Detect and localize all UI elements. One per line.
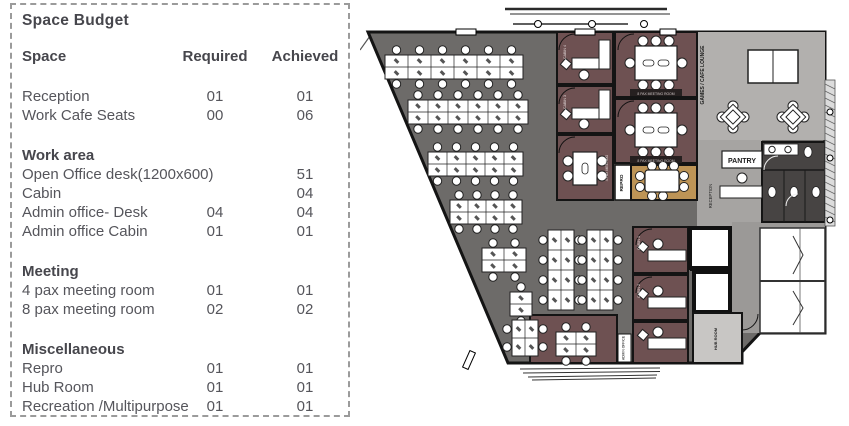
toilet-block	[762, 142, 825, 222]
chair-icon	[578, 256, 586, 264]
staircase	[760, 228, 825, 333]
page: { "space_budget": { "title": "Space Budg…	[0, 0, 849, 426]
row-label: Recreation /Multipurpose	[22, 397, 189, 416]
chair-icon	[539, 296, 547, 304]
section-heading: Work area	[12, 146, 348, 165]
row-achieved: 04	[260, 184, 350, 203]
chair-icon	[578, 296, 586, 304]
row-achieved: 06	[260, 106, 350, 125]
row-achieved: 01	[260, 359, 350, 378]
row-label: Cabin	[22, 184, 61, 203]
chair-icon	[392, 80, 400, 88]
col-achieved: Achieved	[260, 47, 350, 66]
chair-icon	[452, 177, 460, 185]
panel-title: Space Budget	[22, 12, 348, 30]
chair-icon	[415, 80, 423, 88]
row-achieved: 01	[260, 87, 350, 106]
reception-label: RECEPTION	[708, 184, 713, 208]
chair-icon	[452, 143, 460, 151]
cabin-1-label: CABIN 1	[637, 236, 641, 250]
elevator-shafts	[690, 228, 730, 312]
chair-icon	[514, 91, 522, 99]
chair-icon	[514, 125, 522, 133]
row-required: 01	[170, 281, 260, 300]
meeting-8pax-1-label: 8 PAX MEETING ROOM	[637, 159, 674, 163]
chair-icon	[582, 323, 590, 331]
chair-icon	[455, 225, 463, 233]
lounge-floor	[697, 32, 825, 140]
cabin-2-label: CABIN 2	[637, 284, 641, 298]
chair-icon	[562, 357, 570, 365]
repro-label: REPRO	[619, 174, 625, 191]
chair-icon	[438, 46, 446, 54]
col-space: Space	[22, 47, 66, 66]
table-header: Space Required Achieved	[12, 47, 348, 66]
row-achieved: 02	[260, 300, 350, 319]
chair-icon	[473, 225, 481, 233]
row-achieved: 01	[260, 281, 350, 300]
row-required: 01	[170, 222, 260, 241]
chair-icon	[614, 276, 622, 284]
row-label: Hub Room	[22, 378, 94, 397]
chair-icon	[433, 177, 441, 185]
chair-icon	[490, 177, 498, 185]
chair-icon	[438, 80, 446, 88]
chair-icon	[484, 46, 492, 54]
row-achieved: 01	[260, 397, 350, 416]
section-label: Miscellaneous	[22, 340, 125, 359]
table-row: 8 pax meeting room 02 02	[12, 300, 348, 319]
table-row: 4 pax meeting room 01 01	[12, 281, 348, 300]
chair-icon	[578, 276, 586, 284]
row-required: 02	[170, 300, 260, 319]
chair-icon	[509, 143, 517, 151]
row-label: Work Cafe Seats	[22, 106, 135, 125]
row-required: 01	[170, 359, 260, 378]
chair-icon	[507, 46, 515, 54]
chair-icon	[474, 91, 482, 99]
row-label: 4 pax meeting room	[22, 281, 155, 300]
section-heading: Meeting	[12, 262, 348, 281]
chair-icon	[503, 325, 511, 333]
row-achieved: 04	[260, 203, 350, 222]
chair-icon	[434, 125, 442, 133]
row-label: Open Office desk(1200x600)	[22, 165, 214, 184]
chair-icon	[433, 143, 441, 151]
chair-icon	[614, 236, 622, 244]
chair-icon	[414, 125, 422, 133]
chair-icon	[484, 80, 492, 88]
chair-icon	[614, 256, 622, 264]
meeting-8pax-2-label: 8 PAX MEETING ROOM	[637, 92, 674, 96]
row-label: Admin office Cabin	[22, 222, 148, 241]
chair-icon	[494, 125, 502, 133]
chair-icon	[578, 236, 586, 244]
row-achieved: 01	[260, 378, 350, 397]
chair-icon	[511, 273, 519, 281]
chair-icon	[503, 343, 511, 351]
chair-icon	[414, 91, 422, 99]
facade-hatch-band	[825, 80, 835, 226]
chair-icon	[490, 143, 498, 151]
chair-icon	[511, 239, 519, 247]
chair-icon	[489, 239, 497, 247]
table-row: Recreation /Multipurpose 01 01	[12, 397, 348, 416]
chair-icon	[392, 46, 400, 54]
chair-icon	[454, 91, 462, 99]
row-label: Repro	[22, 359, 63, 378]
chair-icon	[539, 236, 547, 244]
chair-icon	[539, 325, 547, 333]
meeting-4pax-label: 4 PAX MEETING	[605, 154, 609, 181]
chair-icon	[471, 177, 479, 185]
chair-icon	[473, 191, 481, 199]
pantry-label: PANTRY	[728, 158, 756, 165]
table-row: Repro 01 01	[12, 359, 348, 378]
chair-icon	[507, 80, 515, 88]
section-label: Meeting	[22, 262, 79, 281]
space-budget-panel: Space Budget Space Required Achieved Rec…	[10, 3, 350, 417]
table-row: Reception 01 01	[12, 87, 348, 106]
col-required: Required	[170, 47, 260, 66]
row-required: 01	[170, 87, 260, 106]
chair-icon	[494, 91, 502, 99]
chair-icon	[539, 343, 547, 351]
row-required: 01	[170, 378, 260, 397]
chair-icon	[539, 276, 547, 284]
cabin-4-label: CABIN 4	[563, 45, 567, 59]
row-label: 8 pax meeting room	[22, 300, 155, 319]
exterior-bottom-lines	[520, 368, 660, 380]
table-row: Work Cafe Seats 00 06	[12, 106, 348, 125]
hub-room-label: HUB ROOM	[713, 327, 718, 350]
chair-icon	[539, 256, 547, 264]
row-required: 00	[170, 106, 260, 125]
row-label: Reception	[22, 87, 90, 106]
chair-icon	[461, 80, 469, 88]
chair-icon	[474, 125, 482, 133]
table-row: Cabin 04	[12, 184, 348, 203]
chair-icon	[491, 191, 499, 199]
row-achieved: 01	[260, 222, 350, 241]
chair-icon	[614, 296, 622, 304]
row-required: 04	[170, 203, 260, 222]
admin-office-label: ADMIN OFFICE	[622, 335, 626, 360]
chair-icon	[517, 283, 525, 291]
chair-icon	[434, 91, 442, 99]
chair-icon	[455, 191, 463, 199]
exterior-top-lines	[505, 9, 670, 28]
cabin-3-label: CABIN 3	[563, 95, 567, 109]
row-achieved: 51	[260, 165, 350, 184]
chair-icon	[415, 46, 423, 54]
chair-icon	[582, 357, 590, 365]
floor-plan: GAMES / CAFE LOUNGE PANTRY RECEPTION REP…	[360, 0, 849, 426]
games-lounge-label: GAMES / CAFE LOUNGE	[700, 45, 706, 105]
chair-icon	[509, 191, 517, 199]
callout-line	[360, 36, 370, 50]
chair-icon	[509, 177, 517, 185]
row-required: 01	[170, 397, 260, 416]
row-label: Admin office- Desk	[22, 203, 148, 222]
chair-icon	[461, 46, 469, 54]
chair-icon	[562, 323, 570, 331]
table-row: Admin office Cabin 01 01	[12, 222, 348, 241]
chair-icon	[489, 273, 497, 281]
section-heading: Miscellaneous	[12, 340, 348, 359]
table-row: Admin office- Desk 04 04	[12, 203, 348, 222]
table-row: Open Office desk(1200x600) 51	[12, 165, 348, 184]
chair-icon	[454, 125, 462, 133]
chair-icon	[491, 225, 499, 233]
table-row: Hub Room 01 01	[12, 378, 348, 397]
chair-icon	[509, 225, 517, 233]
section-label: Work area	[22, 146, 94, 165]
chair-icon	[471, 143, 479, 151]
